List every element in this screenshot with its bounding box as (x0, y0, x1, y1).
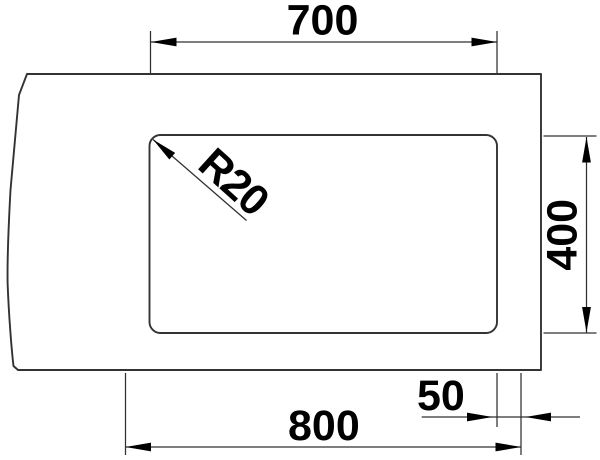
svg-text:800: 800 (288, 402, 360, 450)
svg-text:50: 50 (417, 372, 465, 420)
svg-text:700: 700 (287, 0, 359, 45)
svg-text:400: 400 (539, 199, 587, 271)
svg-text:R20: R20 (189, 139, 277, 225)
